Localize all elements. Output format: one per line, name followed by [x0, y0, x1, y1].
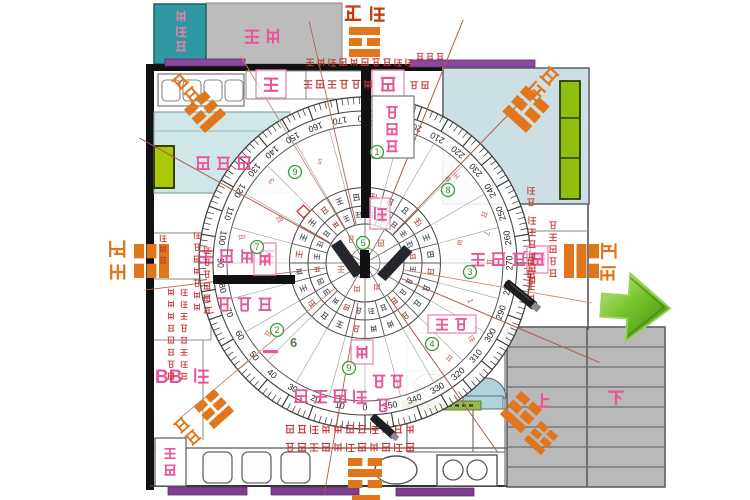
svg-text:80: 80 — [217, 282, 229, 293]
svg-text:7: 7 — [254, 242, 259, 252]
svg-text:9: 9 — [346, 363, 351, 373]
svg-text:3: 3 — [467, 267, 472, 277]
svg-text:4: 4 — [429, 339, 434, 349]
svg-text:9: 9 — [292, 167, 297, 177]
svg-text:8: 8 — [445, 185, 450, 195]
svg-text:5: 5 — [360, 238, 365, 248]
svg-text:1: 1 — [374, 147, 379, 157]
svg-text:270: 270 — [505, 256, 515, 271]
svg-text:2: 2 — [274, 325, 279, 335]
svg-text:6: 6 — [290, 335, 297, 350]
